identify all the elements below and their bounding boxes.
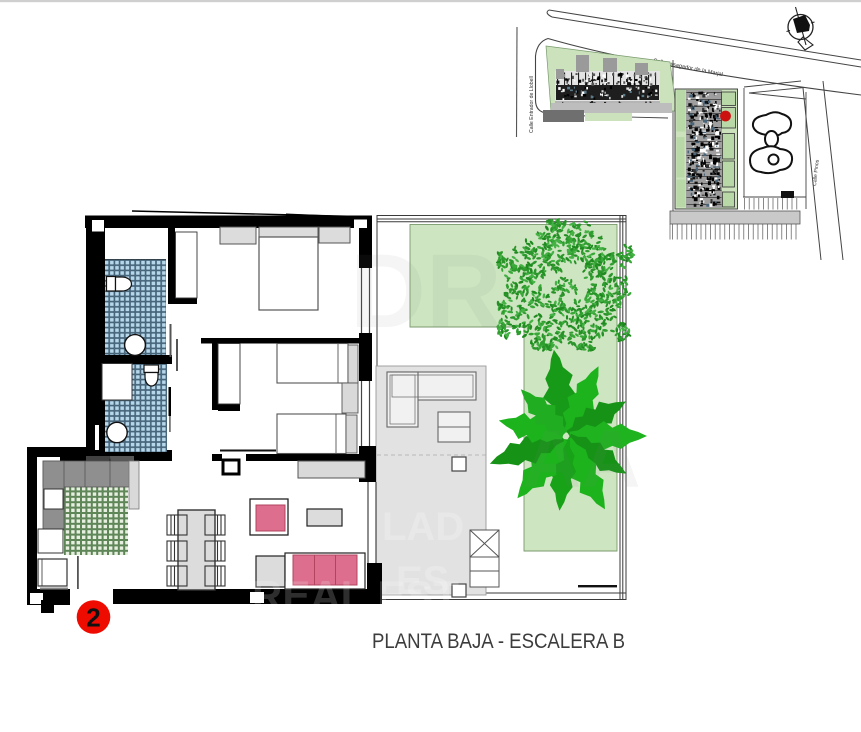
svg-text:Calle Entrador de Llobell: Calle Entrador de Llobell xyxy=(529,76,535,133)
svg-text:DR: DR xyxy=(350,233,502,350)
svg-text:LAD: LAD xyxy=(382,505,464,549)
svg-text:AA: AA xyxy=(522,414,640,505)
svg-text:PLANTA BAJA - ESCALERA B: PLANTA BAJA - ESCALERA B xyxy=(372,630,625,653)
svg-text:REAL EST: REAL EST xyxy=(252,572,459,619)
svg-text:2: 2 xyxy=(86,603,100,633)
